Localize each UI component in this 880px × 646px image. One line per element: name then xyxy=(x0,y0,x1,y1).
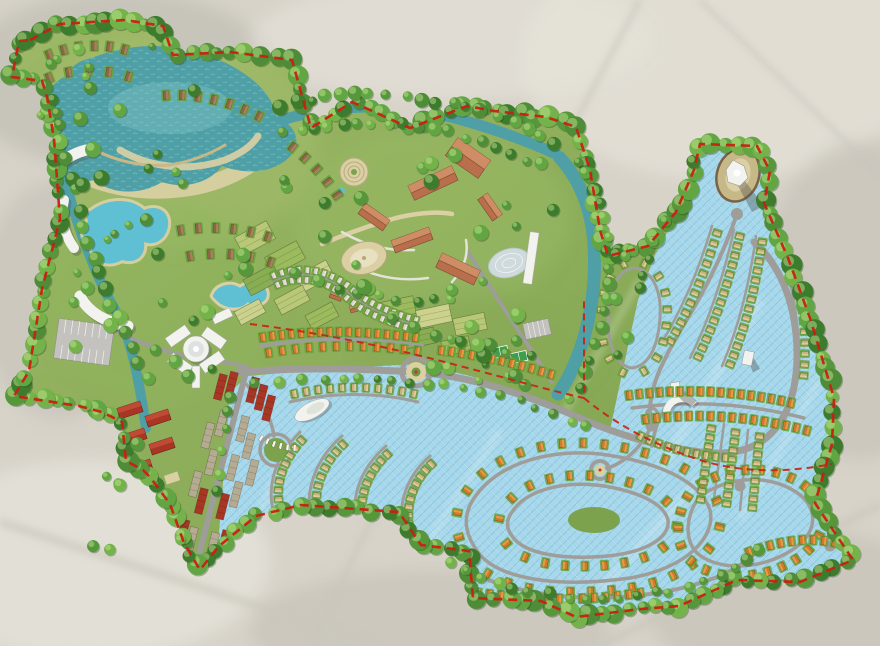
tree-highlight xyxy=(503,201,507,205)
tree-highlight xyxy=(548,205,554,211)
tree-highlight xyxy=(523,158,528,163)
orange-villa-row xyxy=(756,391,767,403)
tree-highlight xyxy=(502,349,507,354)
tree-highlight xyxy=(581,421,586,426)
orange-villa-row xyxy=(436,345,446,357)
east-arc-houses xyxy=(799,360,810,369)
east-fan-houses xyxy=(755,246,766,256)
lagoon-bungalows xyxy=(211,222,221,234)
tree-highlight xyxy=(190,316,195,321)
orange-villa-row xyxy=(263,347,274,359)
tree-highlight xyxy=(375,105,383,113)
orange-villa-row xyxy=(277,345,287,357)
east-column-houses xyxy=(728,445,739,455)
orange-villa-row xyxy=(727,412,737,424)
marina-arc-houses xyxy=(313,384,323,395)
orange-villa-row xyxy=(655,387,665,399)
tree-highlight xyxy=(172,168,177,173)
master-plan-rendering xyxy=(0,0,880,646)
tree-highlight xyxy=(512,336,517,341)
tree-highlight xyxy=(80,400,86,406)
orange-villa-row xyxy=(684,411,693,422)
tree-highlight xyxy=(430,295,435,300)
tree-highlight xyxy=(81,237,88,244)
tree-highlight xyxy=(215,470,221,476)
tree-highlight xyxy=(82,282,89,289)
marina-arc-houses xyxy=(350,382,359,392)
tree-highlight xyxy=(352,119,357,124)
docked-boats xyxy=(293,445,296,451)
orange-villa-row xyxy=(634,388,644,400)
orange-villa-row xyxy=(446,346,456,358)
tree-highlight xyxy=(388,314,393,319)
east-column-houses xyxy=(698,477,709,487)
tree-highlight xyxy=(322,122,327,127)
east-column-houses xyxy=(699,468,710,478)
tree-highlight xyxy=(600,307,605,312)
tree-highlight xyxy=(223,407,228,412)
tree-highlight xyxy=(424,380,430,386)
orange-villa-row xyxy=(344,326,353,337)
tree-highlight xyxy=(742,554,748,560)
tree-highlight xyxy=(646,255,651,260)
tree-highlight xyxy=(237,249,244,256)
tree-highlight xyxy=(511,117,517,123)
tree-highlight xyxy=(599,595,604,600)
east-column-houses xyxy=(752,449,763,458)
tree-highlight xyxy=(309,97,314,102)
tree-highlight xyxy=(649,599,656,606)
villa-row-southeast xyxy=(808,534,817,545)
tree-highlight xyxy=(225,392,231,398)
tree-highlight xyxy=(33,23,44,34)
east-column-houses xyxy=(706,423,717,433)
tree-highlight xyxy=(639,272,644,277)
villa-row-southeast xyxy=(786,535,796,547)
tree-highlight xyxy=(548,138,555,145)
tree-highlight xyxy=(404,92,409,97)
orange-villa-row xyxy=(304,342,314,354)
tree-highlight xyxy=(280,176,285,181)
lagoon-bungalows xyxy=(193,222,203,235)
marina-arc-houses xyxy=(373,383,382,394)
tree-highlight xyxy=(598,212,605,219)
tree-highlight xyxy=(69,298,74,303)
tree-highlight xyxy=(491,143,497,149)
tree-highlight xyxy=(275,377,281,383)
tree-highlight xyxy=(179,179,184,184)
tree-highlight xyxy=(478,136,484,142)
tree-highlight xyxy=(426,157,433,164)
orange-villa-row xyxy=(382,328,392,340)
tree-highlight xyxy=(596,199,601,204)
tree-highlight xyxy=(429,123,436,130)
tree-highlight xyxy=(806,485,817,496)
tree-highlight xyxy=(201,305,209,313)
orange-villa-row xyxy=(665,386,674,397)
tree-highlight xyxy=(319,231,326,238)
tree-highlight xyxy=(476,377,480,381)
villa-loop-outer xyxy=(578,437,587,448)
tree-highlight xyxy=(580,167,586,173)
orange-villa-row xyxy=(662,411,672,423)
lagoon-bungalows xyxy=(175,224,186,237)
tree-highlight xyxy=(322,376,327,381)
tree-highlight xyxy=(586,196,595,205)
tree-highlight xyxy=(299,126,304,131)
tree-highlight xyxy=(621,252,626,257)
tree-highlight xyxy=(518,396,522,400)
tree-highlight xyxy=(785,573,792,580)
villa-loop-inner xyxy=(580,561,589,572)
tree-highlight xyxy=(406,379,411,384)
tree-highlight xyxy=(114,311,122,319)
villa-loop-inner xyxy=(565,470,575,482)
tree-highlight xyxy=(443,125,449,131)
orange-villa-row xyxy=(277,329,287,341)
tree-highlight xyxy=(132,438,139,445)
villa-row-bottom xyxy=(624,589,634,601)
tree-highlight xyxy=(476,388,482,394)
orange-villa-row xyxy=(736,388,746,400)
tree-highlight xyxy=(93,266,100,273)
villa-loop-east xyxy=(673,524,684,533)
tree-highlight xyxy=(700,577,704,581)
tree-highlight xyxy=(639,602,645,608)
tree-highlight xyxy=(614,351,618,355)
tree-highlight xyxy=(513,222,517,226)
tree-highlight xyxy=(292,94,299,101)
tree-highlight xyxy=(278,128,283,133)
marina-arc-houses xyxy=(273,485,284,494)
tree-highlight xyxy=(99,282,107,290)
tree-highlight xyxy=(120,327,126,333)
east-column-houses xyxy=(730,428,741,438)
orange-villa-row xyxy=(456,347,467,359)
tree-highlight xyxy=(297,374,303,380)
tree-highlight xyxy=(661,216,667,222)
tree-highlight xyxy=(170,356,177,363)
tree-highlight xyxy=(88,541,94,547)
tree-highlight xyxy=(218,447,223,452)
tree-highlight xyxy=(2,67,12,77)
tree-highlight xyxy=(567,118,577,128)
lake-bungalows xyxy=(89,40,99,52)
lagoon-bungalows xyxy=(228,223,239,236)
tree-highlight xyxy=(374,376,378,380)
docked-boats xyxy=(286,444,289,450)
tree-highlight xyxy=(511,308,519,316)
tree-highlight xyxy=(354,374,359,379)
orange-villa-row xyxy=(759,415,770,427)
tree-highlight xyxy=(583,596,588,601)
tree-highlight xyxy=(516,104,526,114)
tree-highlight xyxy=(392,297,397,302)
tree-highlight xyxy=(212,486,217,491)
helipad xyxy=(193,346,199,352)
tree-highlight xyxy=(447,335,451,339)
villa-loop-inner xyxy=(560,560,570,572)
east-column-houses xyxy=(747,503,758,512)
east-low-arc-houses xyxy=(720,452,729,463)
tree-highlight xyxy=(825,405,834,414)
tree-highlight xyxy=(472,339,479,346)
tree-highlight xyxy=(604,264,609,269)
tree-highlight xyxy=(313,275,319,281)
tree-highlight xyxy=(545,588,551,594)
tree-highlight xyxy=(409,322,415,328)
east-low-arc-houses xyxy=(711,451,721,462)
tree-highlight xyxy=(111,230,115,234)
east-arc-houses xyxy=(798,371,809,380)
tree-highlight xyxy=(145,164,150,169)
tree-highlight xyxy=(115,480,121,486)
orange-villa-row xyxy=(644,387,654,399)
tree-highlight xyxy=(83,73,87,77)
tree-highlight xyxy=(507,583,513,589)
villa-row-southeast xyxy=(797,534,807,545)
east-column-houses xyxy=(723,481,734,491)
tree-highlight xyxy=(250,379,255,384)
tree-highlight xyxy=(140,19,146,25)
tree-highlight xyxy=(154,150,159,155)
tree-highlight xyxy=(61,17,71,27)
east-fan-houses xyxy=(757,237,768,247)
orange-villa-row xyxy=(290,343,300,355)
tree-highlight xyxy=(77,221,83,227)
lake-bungalows xyxy=(161,89,171,101)
orange-villa-row xyxy=(624,389,634,401)
tree-highlight xyxy=(495,578,501,584)
east-column-houses xyxy=(753,441,764,450)
tree-highlight xyxy=(413,121,419,127)
east-low-arc-houses xyxy=(701,450,711,461)
orange-villa-row xyxy=(726,387,736,399)
tree-highlight xyxy=(335,88,342,95)
tree-highlight xyxy=(149,43,153,47)
tree-highlight xyxy=(239,263,246,270)
tree-highlight xyxy=(531,405,535,409)
tree-highlight xyxy=(357,280,365,288)
tree-highlight xyxy=(506,149,512,155)
lake-bungalows xyxy=(103,65,114,78)
tree-highlight xyxy=(147,17,157,27)
tree-highlight xyxy=(388,377,392,381)
orange-villa-row xyxy=(738,413,748,425)
tree-highlight xyxy=(418,163,424,169)
tree-highlight xyxy=(85,83,91,89)
lake-bungalows xyxy=(104,40,115,53)
tree-highlight xyxy=(90,253,98,261)
tree-highlight xyxy=(479,277,483,281)
east-column-houses xyxy=(750,476,761,485)
orange-villa-row xyxy=(331,341,340,352)
tree-highlight xyxy=(228,524,236,532)
tree-highlight xyxy=(224,272,228,276)
tree-highlight xyxy=(688,156,695,163)
lagoon-bungalows xyxy=(184,249,195,262)
tree-highlight xyxy=(86,63,91,68)
orange-villa-row xyxy=(345,341,354,352)
tree-highlight xyxy=(816,458,826,468)
tree-highlight xyxy=(549,409,554,414)
tree-highlight xyxy=(431,331,437,337)
tree-highlight xyxy=(524,123,531,130)
tree-highlight xyxy=(450,98,455,103)
orange-villa-row xyxy=(651,412,661,424)
tree-highlight xyxy=(208,365,213,370)
orange-villa-row xyxy=(716,411,726,422)
tree-highlight xyxy=(463,567,467,571)
east-arc-houses xyxy=(800,349,810,358)
tree-highlight xyxy=(653,587,658,592)
tree-highlight xyxy=(523,588,528,593)
tree-highlight xyxy=(443,362,450,369)
tree-highlight xyxy=(335,285,340,290)
tree-highlight xyxy=(290,268,296,274)
tree-highlight xyxy=(685,583,690,588)
tree-highlight xyxy=(590,339,596,345)
villa-loop-inner xyxy=(600,559,610,571)
marina-arc-houses xyxy=(301,386,311,397)
east-fan-houses xyxy=(754,256,765,266)
orange-villa-row xyxy=(353,327,362,338)
tree-highlight xyxy=(355,192,362,199)
tree-highlight xyxy=(381,90,386,95)
tree-highlight xyxy=(70,341,77,348)
tree-highlight xyxy=(37,112,41,116)
east-column-houses xyxy=(721,499,732,509)
tree-highlight xyxy=(95,171,103,179)
tree-highlight xyxy=(49,95,55,101)
tree-highlight xyxy=(349,87,356,94)
tree-highlight xyxy=(611,293,617,299)
tree-highlight xyxy=(586,357,591,362)
east-column-houses xyxy=(729,436,740,446)
east-column-houses xyxy=(695,495,706,505)
tree-highlight xyxy=(189,85,195,91)
orange-villa-row xyxy=(318,341,328,352)
tree-highlight xyxy=(528,351,533,356)
tree-highlight xyxy=(320,198,326,204)
tree-highlight xyxy=(754,545,760,551)
orange-villa-row xyxy=(675,386,684,397)
orange-villa-row xyxy=(706,386,716,397)
tree-highlight xyxy=(616,596,620,600)
tree-highlight xyxy=(47,59,52,64)
tree-highlight xyxy=(152,248,159,255)
tree-highlight xyxy=(636,283,642,289)
tree-highlight xyxy=(576,383,582,389)
tree-highlight xyxy=(566,595,570,599)
tree-highlight xyxy=(718,571,723,576)
east-column-houses xyxy=(722,490,733,500)
tree-highlight xyxy=(569,418,574,423)
loop-center-island xyxy=(568,507,620,533)
orange-villa-row xyxy=(315,327,324,338)
tree-highlight xyxy=(74,269,78,273)
east-oval-houses xyxy=(661,321,672,331)
east-column-houses xyxy=(748,494,759,503)
tree-highlight xyxy=(814,565,822,573)
tree-highlight xyxy=(602,293,608,299)
tree-highlight xyxy=(425,175,433,183)
lagoon-bungalows xyxy=(205,248,215,260)
tree-highlight xyxy=(597,322,604,329)
tree-highlight xyxy=(24,353,32,361)
orange-villa-row xyxy=(695,410,704,421)
marina-arc-houses xyxy=(311,490,322,500)
tree-highlight xyxy=(74,44,80,50)
east-column-houses xyxy=(724,472,735,482)
tree-highlight xyxy=(340,375,344,379)
tree-highlight xyxy=(143,373,149,379)
tree-highlight xyxy=(105,545,111,551)
tree-highlight xyxy=(40,260,48,268)
tree-highlight xyxy=(105,319,112,326)
tree-highlight xyxy=(223,425,227,429)
terrace-row xyxy=(303,265,312,275)
tree-highlight xyxy=(430,98,436,104)
tree-highlight xyxy=(460,385,464,389)
tree-highlight xyxy=(447,285,453,291)
tree-highlight xyxy=(75,205,82,212)
orange-villa-row xyxy=(257,331,267,343)
tree-highlight xyxy=(449,149,456,156)
tree-highlight xyxy=(141,214,147,220)
tree-highlight xyxy=(605,233,610,238)
tree-highlight xyxy=(732,564,737,569)
orange-villa-row xyxy=(334,326,343,337)
tree-highlight xyxy=(579,366,586,373)
tree-highlight xyxy=(249,508,256,515)
tree-highlight xyxy=(414,298,419,303)
orange-villa-row xyxy=(673,411,683,422)
tree-highlight xyxy=(427,361,435,369)
east-column-houses xyxy=(752,458,763,467)
tree-highlight xyxy=(53,108,58,113)
tree-highlight xyxy=(159,299,164,304)
tree-highlight xyxy=(623,332,629,338)
tree-highlight xyxy=(367,121,372,126)
tree-highlight xyxy=(340,119,346,125)
tree-highlight xyxy=(385,121,390,126)
orange-villa-row xyxy=(372,328,382,340)
marina-arc-houses xyxy=(397,386,407,397)
tree-highlight xyxy=(535,131,541,137)
tree-highlight xyxy=(37,390,47,400)
tree-highlight xyxy=(466,321,473,328)
orange-villa-row xyxy=(296,327,306,339)
tree-highlight xyxy=(55,120,60,125)
tree-highlight xyxy=(151,345,157,351)
tree-highlight xyxy=(509,370,516,377)
tree-highlight xyxy=(49,17,58,26)
orange-villa-row xyxy=(706,411,715,422)
tree-highlight xyxy=(74,112,81,119)
tree-highlight xyxy=(439,379,444,384)
orange-villa-row xyxy=(391,329,401,341)
tree-highlight xyxy=(188,46,195,53)
lagoon-bungalows xyxy=(225,248,235,261)
orange-villa-row xyxy=(685,386,694,397)
lake-bungalows xyxy=(177,89,187,101)
tree-highlight xyxy=(496,391,501,396)
tree-highlight xyxy=(462,135,467,140)
tree-highlight xyxy=(634,592,639,597)
tree-highlight xyxy=(664,589,669,594)
tree-highlight xyxy=(183,370,190,377)
